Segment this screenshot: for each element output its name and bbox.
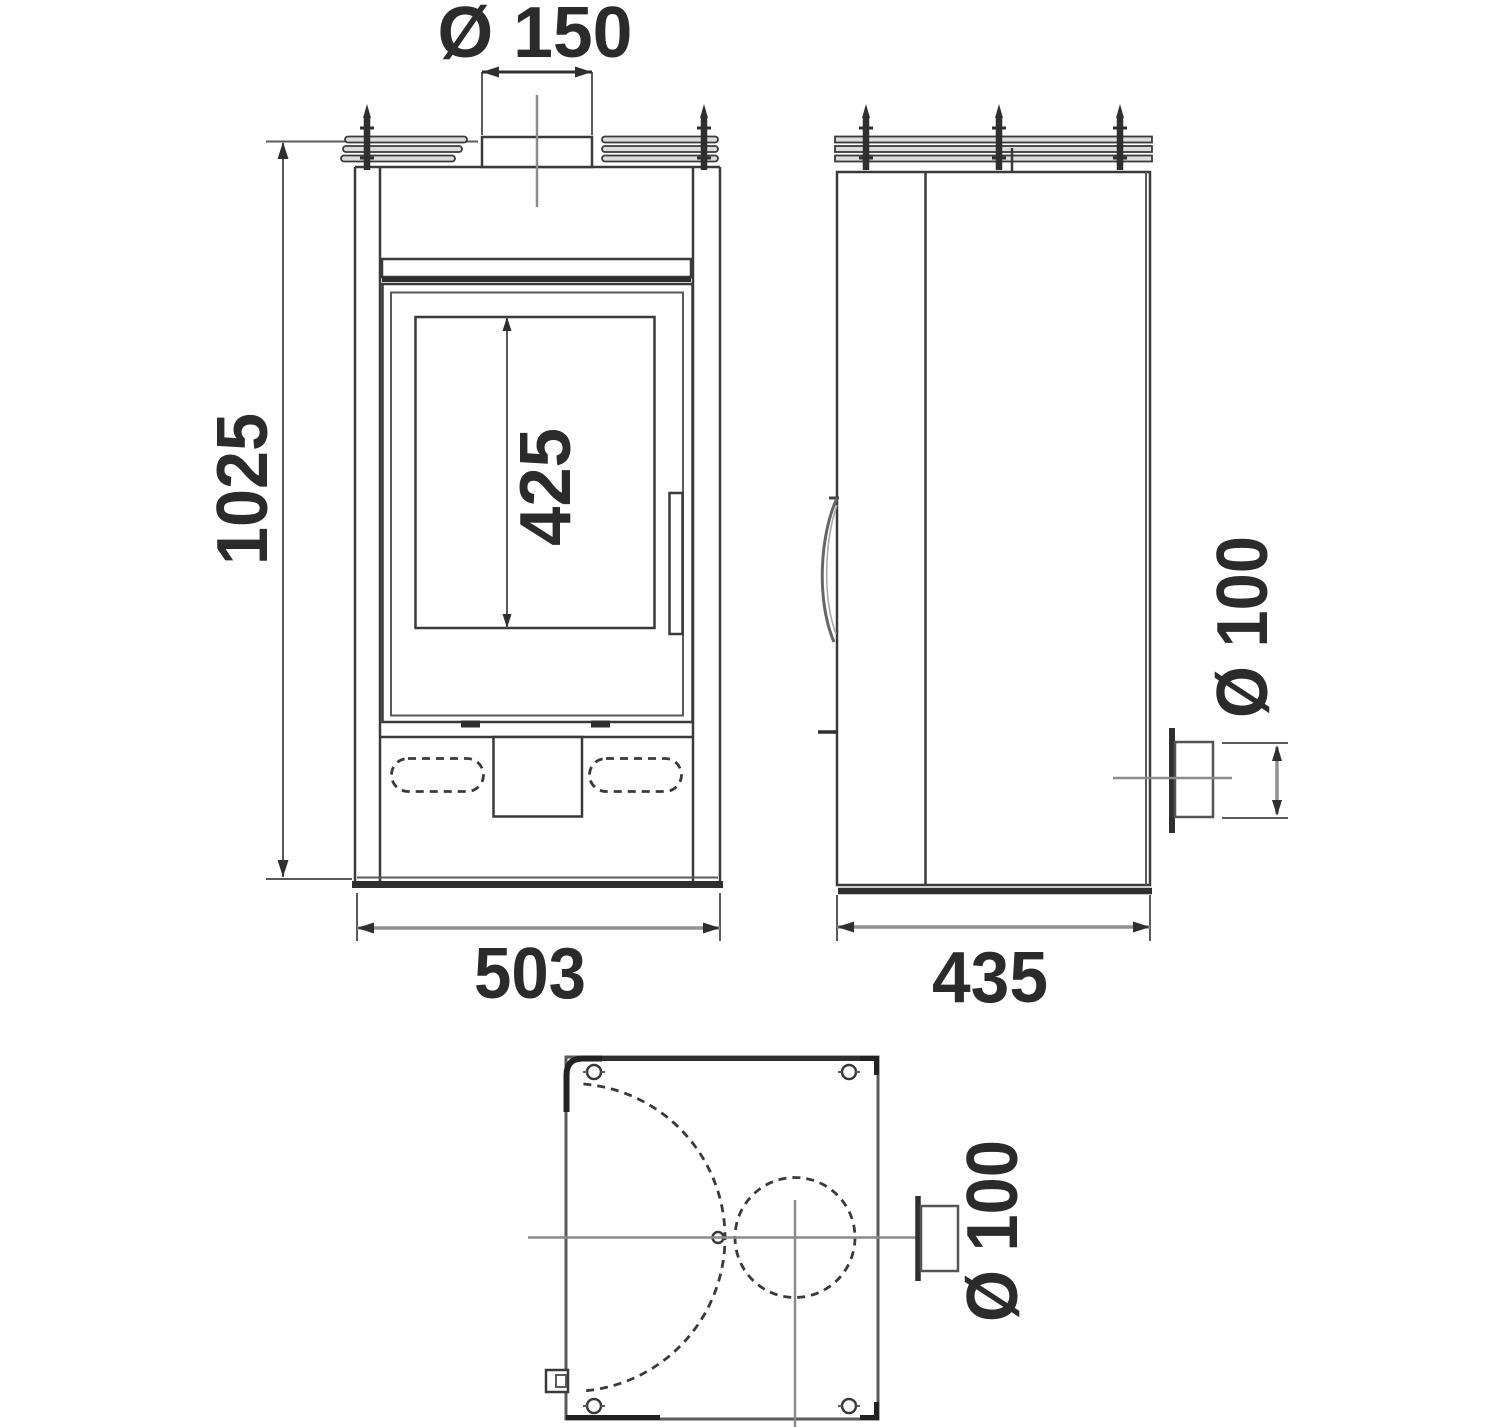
- top-fins-right: [602, 104, 718, 170]
- top-fins-left: [266, 104, 478, 170]
- dim-label-rear-outlet-side: Ø 100: [1203, 536, 1283, 718]
- rear-flue-outlet-plan: [918, 1196, 958, 1281]
- side-view: [818, 104, 1232, 891]
- dim-label-overall-width: 503: [474, 934, 586, 1014]
- front-view: [266, 95, 723, 885]
- hinge-mark-left: [461, 721, 480, 728]
- hinge-mark-right: [591, 721, 610, 728]
- stove-technical-drawing: Ø 150 1025 425 503 435 Ø 100: [0, 0, 1500, 1427]
- dim-overall-width: 503: [357, 893, 720, 1014]
- plan-view: [528, 1057, 958, 1427]
- dim-label-glass-height: 425: [506, 428, 586, 546]
- dim-flue-collar-diameter: Ø 150: [438, 0, 633, 135]
- air-vent-right: [590, 759, 682, 792]
- dim-label-overall-depth: 435: [932, 938, 1048, 1018]
- lintel-band: [382, 259, 691, 280]
- dim-rear-outlet-side: Ø 100: [1203, 536, 1288, 818]
- bottom-panel: [380, 737, 693, 817]
- ash-pan-cover: [494, 737, 583, 817]
- dim-rear-outlet-plan: Ø 100: [953, 1140, 1033, 1322]
- dim-overall-height: 1025: [203, 142, 352, 879]
- dim-label-flue-collar-diameter: Ø 150: [438, 0, 633, 73]
- door-handle: [670, 493, 683, 634]
- dim-label-overall-height: 1025: [203, 413, 283, 565]
- dim-overall-depth: 435: [837, 895, 1150, 1018]
- plan-door-latch: [546, 1370, 568, 1392]
- side-top-fins: [835, 104, 1152, 172]
- air-vent-left: [392, 759, 484, 792]
- flue-collar: [482, 95, 592, 207]
- dim-label-rear-outlet-plan: Ø 100: [953, 1140, 1033, 1322]
- side-body: [837, 172, 1152, 891]
